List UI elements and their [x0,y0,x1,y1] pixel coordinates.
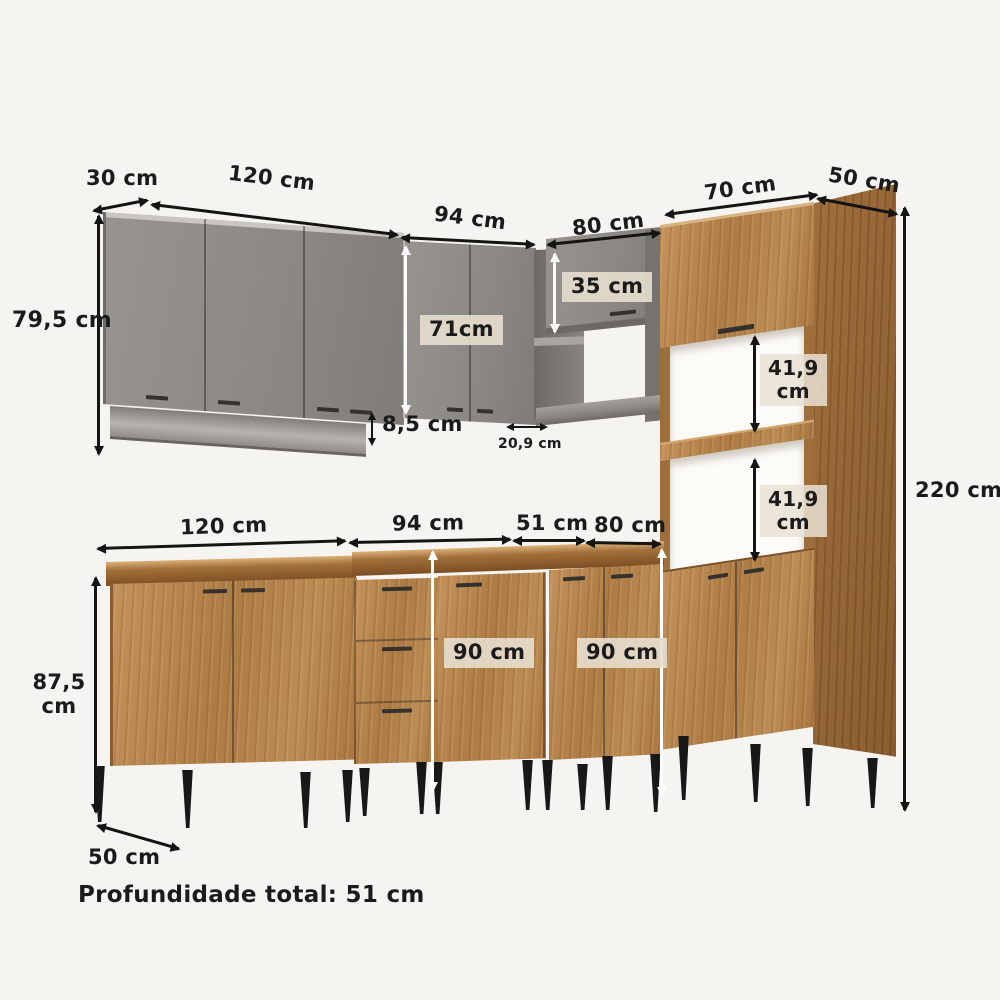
dimension-label-niche-bottom: 41,9 cm [760,485,827,537]
dimension-arrow-niche-top [753,337,756,431]
dimension-label-valance-height: 8,5 cm [382,412,463,436]
tall-bottom-doors [660,548,814,750]
door-handle [708,573,728,580]
dimension-arrow-base-left-width [98,539,345,550]
door-handle [477,409,493,414]
cabinet-leg [340,770,355,822]
base-cabinet-doors [110,578,357,766]
tall-cabinet-front [660,202,814,748]
dimension-arrow-upper-mid-height [404,247,407,413]
niche-top-unit: cm [777,379,810,403]
door-handle [317,407,339,413]
dimension-arrow-upper-right-height [553,254,556,332]
dimension-label-tall-depth: 50 cm [827,162,902,197]
door-seam [232,581,234,763]
footer-total-depth: Profundidade total: 51 cm [78,882,425,908]
dimension-label-base-height-mid: 90 cm [444,638,534,668]
drawer-handle [382,646,412,651]
door-seam [303,226,305,418]
cabinet-leg [575,764,590,810]
niche-top-value: 41,9 [768,356,819,380]
dimension-label-base-depth: 50 cm [88,845,160,869]
cabinet-leg [357,768,372,816]
dimension-arrow-base-left-height [94,578,97,812]
cabinet-leg [748,744,763,802]
dimension-arrow-niche-bottom [753,460,756,560]
dimension-arrow-total-height [903,208,906,810]
dimension-arrow-base-height-right [660,550,663,795]
drawer-handle [382,586,412,591]
door-seam [735,561,737,738]
dimension-label-total-height: 220 cm [915,478,1000,502]
dimension-arrow-base-mid-width [350,538,510,544]
dimension-arrow-upper-left-height [97,216,100,454]
dimension-label-niche-top: 41,9 cm [760,354,827,406]
upper-wall-cabinet-120 [103,212,404,425]
door-handle [456,582,482,587]
dimension-label-corner-shelf-depth: 20,9 cm [498,436,562,452]
door-handle [241,588,265,593]
dimension-label-upper-right-height: 35 cm [562,272,652,302]
corner-seam [543,572,545,758]
dimension-label-upper-depth: 30 cm [86,166,158,190]
door-handle [563,576,585,581]
drawer-seam [356,700,438,704]
dimension-label-upper-mid-height: 71cm [420,315,503,345]
base-cabinet-drawers [354,578,438,764]
dimension-arrow-base-corner-width [514,539,584,542]
dimension-label-base-height-right: 90 cm [577,638,667,668]
cabinet-bottom-edge [546,316,660,335]
tall-cabinet-side [813,184,896,759]
door-seam [204,219,206,411]
door-handle [744,567,764,574]
niche-bottom-unit: cm [777,510,810,534]
cabinet-leg [298,772,313,828]
dimension-label-base-corner-width: 51 cm [516,511,588,535]
door-handle [218,400,240,406]
cabinet-leg [180,770,195,828]
dimension-label-upper-left-width: 120 cm [227,161,317,195]
niche-bottom-value: 41,9 [768,487,819,511]
dimension-arrow-corner-shelf-depth [508,426,546,428]
door-handle [718,324,754,334]
cabinet-leg [600,756,615,810]
cabinet-leg [520,760,535,810]
dimension-arrow-base-height-mid [431,552,434,790]
dimension-label-base-right-width: 80 cm [594,513,666,537]
door-handle [146,395,168,401]
diagram-canvas: 30 cm 120 cm 94 cm 80 cm 70 cm 50 cm 79,… [0,0,1000,1000]
dimension-label-base-mid-width: 94 cm [392,510,465,535]
dimension-label-base-left-height: 87,5 cm [30,670,88,718]
corner-shelf [534,336,584,346]
cabinet-leg [865,758,880,808]
cabinet-leg [800,748,815,806]
door-handle [203,589,227,594]
dimension-arrow-upper-depth [94,199,148,212]
base-left-height-value: 87,5 [32,670,85,694]
drawer-handle [382,708,412,713]
base-left-height-unit: cm [42,694,77,718]
door-handle [610,310,636,317]
dimension-label-upper-left-height: 79,5 cm [12,308,112,333]
open-section-side-panel [645,228,661,422]
dimension-arrow-valance-height [371,414,373,444]
door-handle [611,574,633,579]
dimension-label-base-left-width: 120 cm [180,512,268,539]
cabinet-leg [540,760,555,810]
drawer-seam [356,638,438,642]
dimension-label-upper-mid-width: 94 cm [433,202,508,235]
